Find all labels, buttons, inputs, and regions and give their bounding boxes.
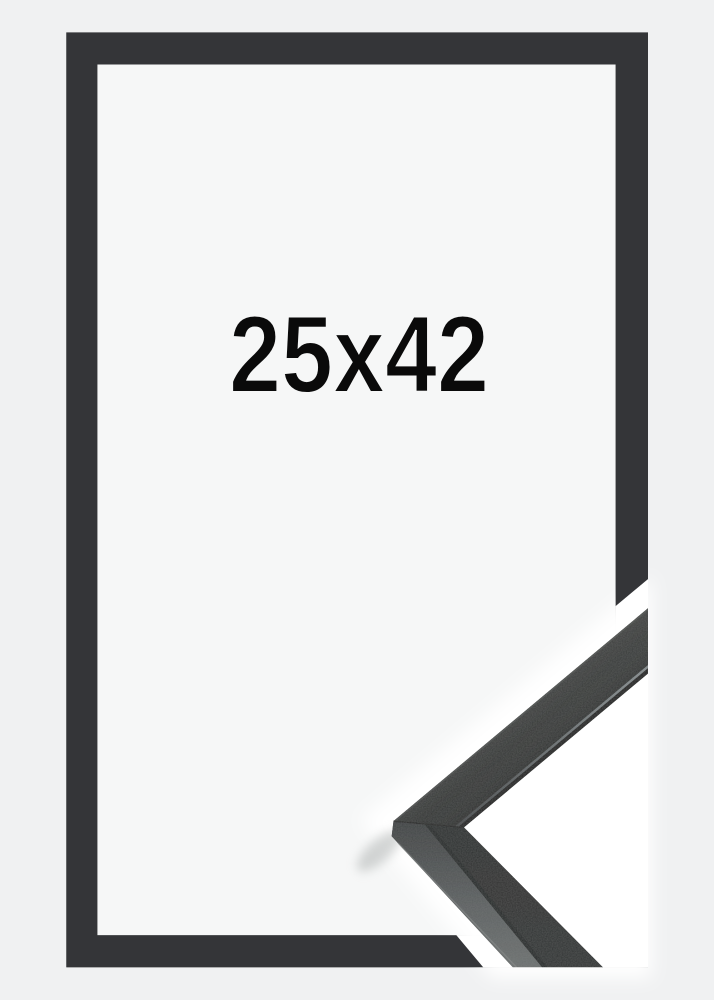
svg-text:25x42: 25x42 xyxy=(229,294,489,416)
